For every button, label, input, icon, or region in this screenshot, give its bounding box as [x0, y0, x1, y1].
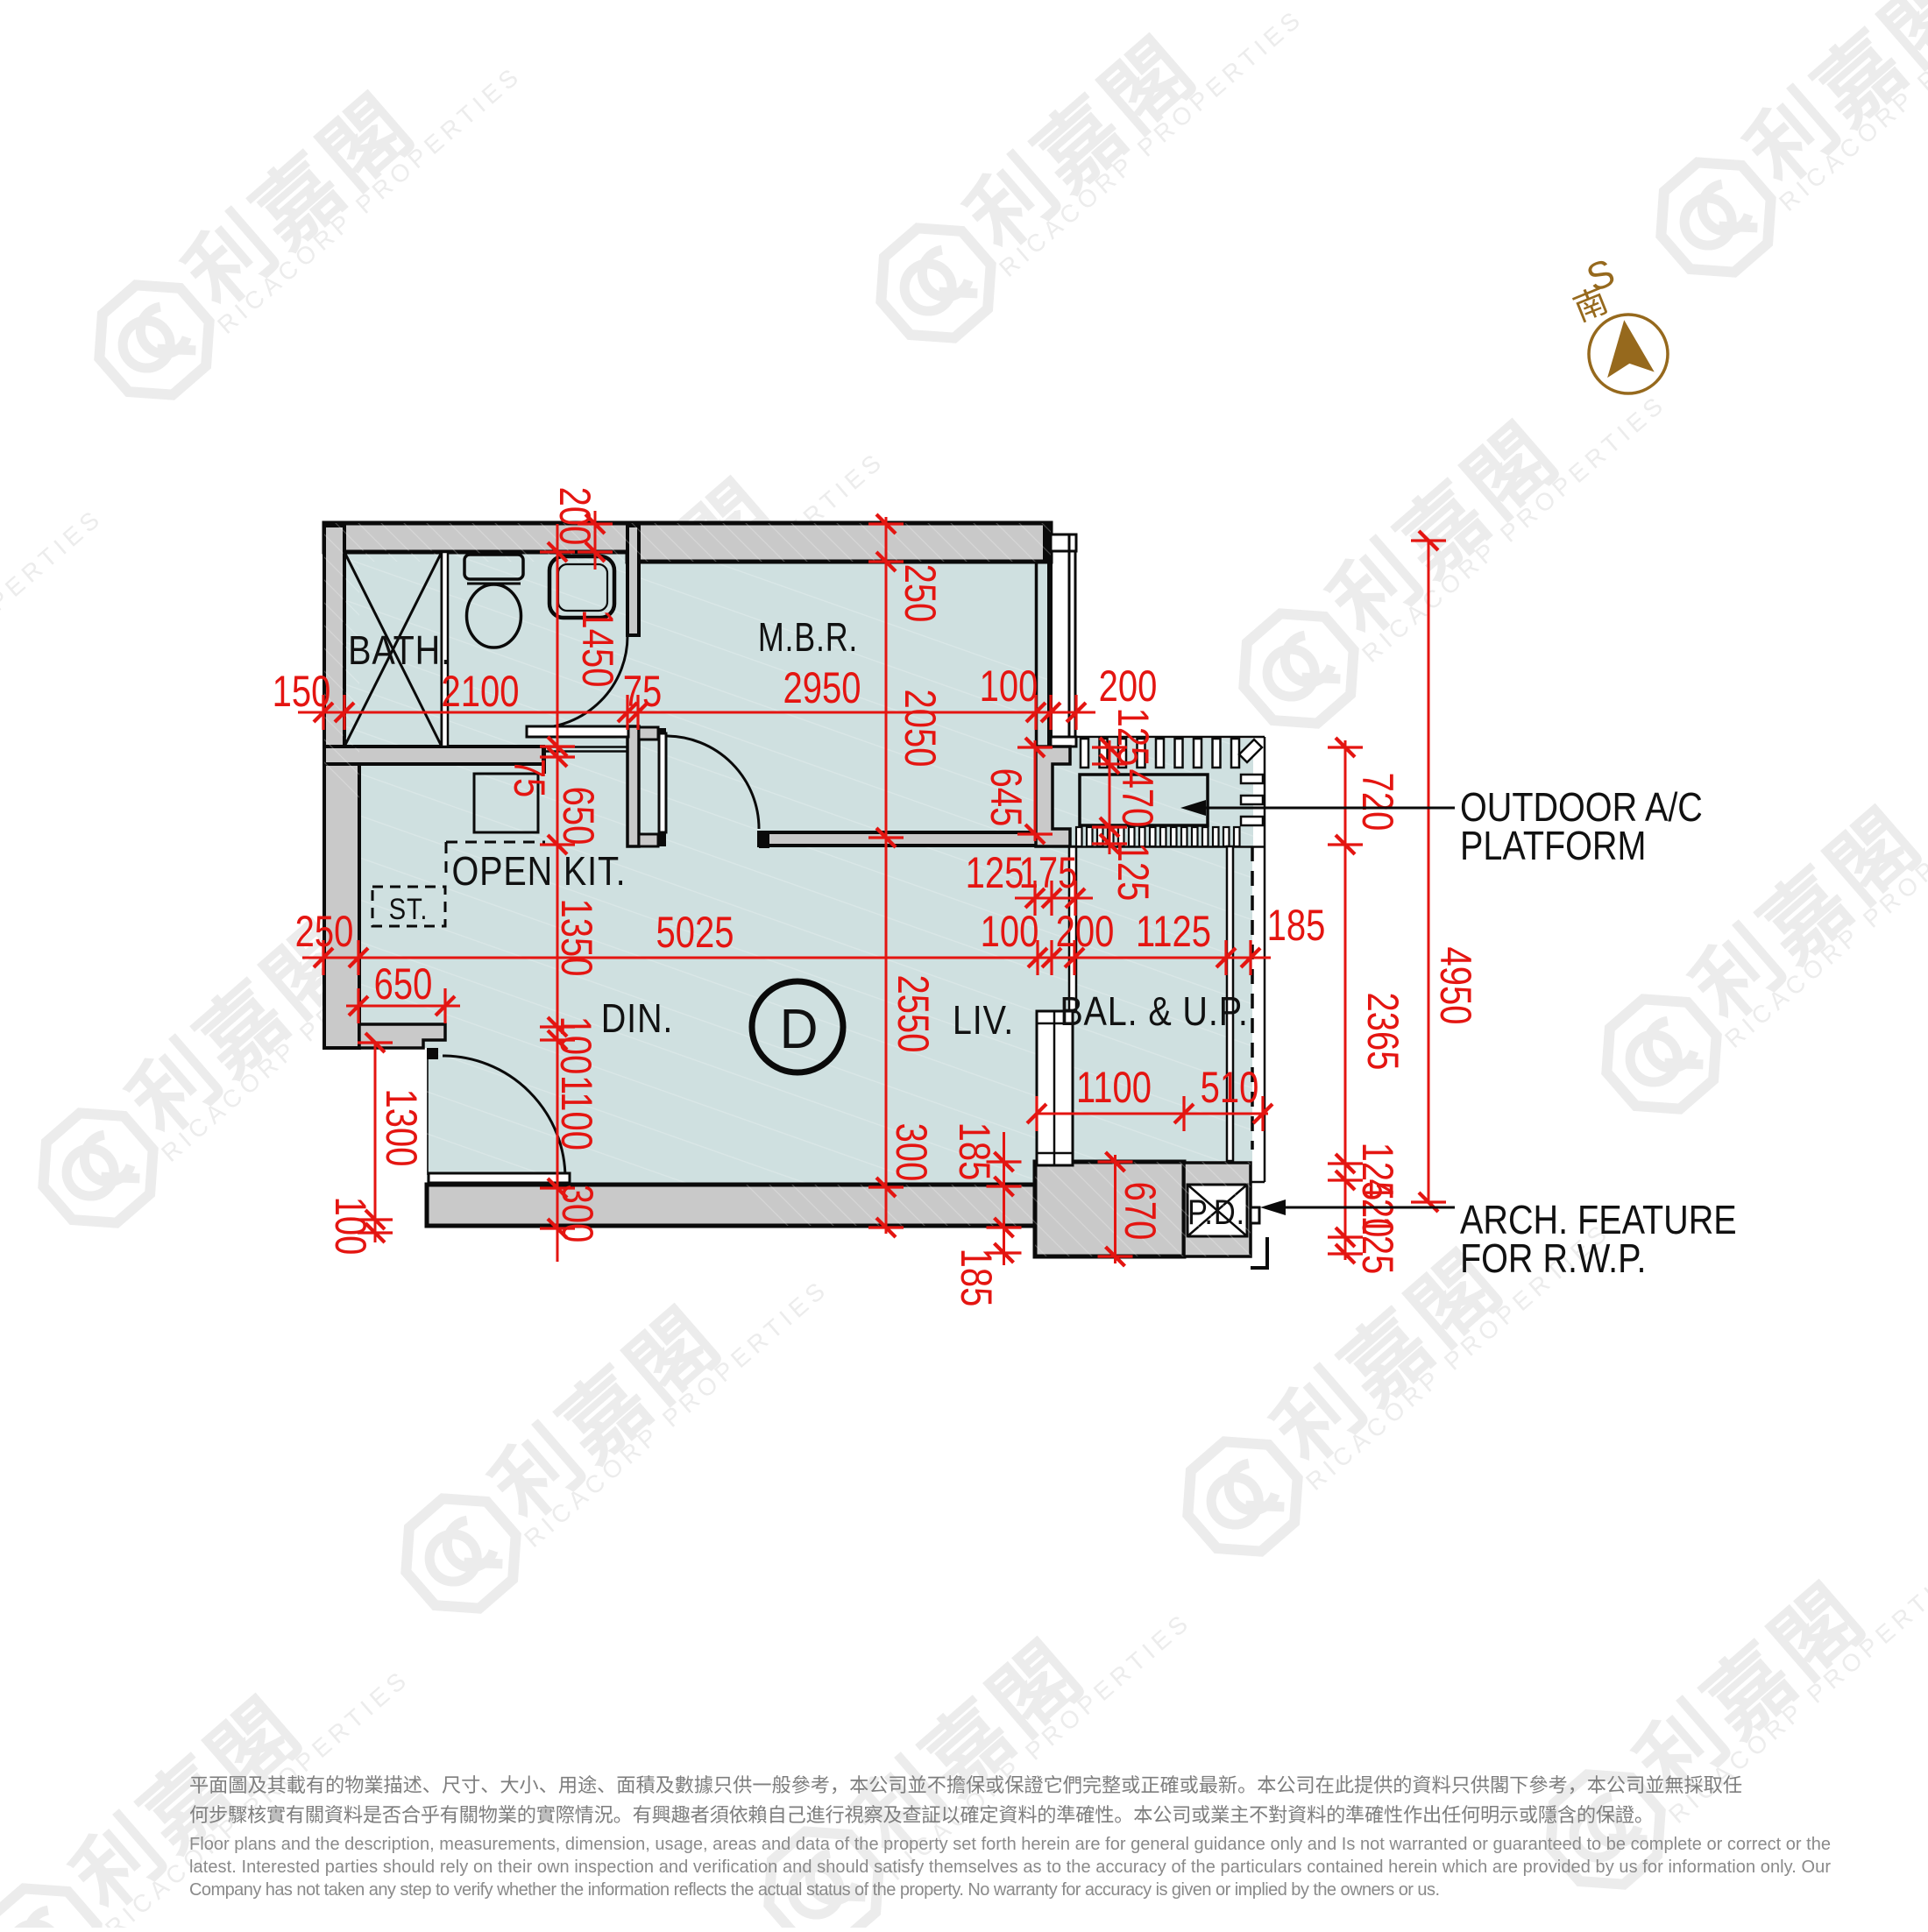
svg-text:100: 100: [981, 907, 1039, 956]
svg-text:2100: 2100: [442, 667, 520, 716]
svg-text:1125: 1125: [1136, 907, 1211, 956]
svg-text:1450: 1450: [573, 610, 622, 688]
svg-text:200: 200: [550, 487, 599, 546]
svg-text:2365: 2365: [1358, 993, 1407, 1071]
svg-text:ST.: ST.: [389, 892, 429, 926]
svg-text:650: 650: [374, 959, 433, 1008]
svg-text:1300: 1300: [377, 1089, 426, 1167]
svg-text:185: 185: [950, 1122, 999, 1181]
svg-text:470: 470: [1113, 769, 1162, 828]
svg-text:BATH.: BATH.: [348, 628, 451, 673]
svg-text:150: 150: [273, 667, 331, 716]
svg-text:LIV.: LIV.: [953, 998, 1014, 1043]
svg-text:200: 200: [1056, 907, 1115, 956]
svg-text:100: 100: [326, 1197, 375, 1256]
svg-text:100: 100: [551, 1016, 600, 1075]
svg-text:645: 645: [982, 768, 1031, 827]
svg-text:Company has not taken any step: Company has not taken any step to verify…: [189, 1880, 1440, 1900]
svg-text:300: 300: [887, 1123, 936, 1182]
svg-text:250: 250: [896, 564, 945, 623]
svg-text:125: 125: [1109, 708, 1158, 767]
svg-text:1350: 1350: [552, 899, 601, 977]
svg-text:FOR R.W.P.: FOR R.W.P.: [1460, 1236, 1646, 1281]
svg-text:125: 125: [1109, 843, 1158, 902]
svg-text:2950: 2950: [783, 663, 861, 712]
svg-text:650: 650: [554, 787, 603, 846]
svg-text:175: 175: [1019, 848, 1078, 897]
svg-text:1100: 1100: [1076, 1063, 1152, 1112]
svg-text:D: D: [780, 998, 819, 1061]
svg-text:185: 185: [1267, 901, 1326, 950]
svg-text:5025: 5025: [656, 908, 734, 957]
svg-text:125: 125: [966, 848, 1024, 897]
svg-text:DIN.: DIN.: [601, 996, 674, 1041]
svg-text:125: 125: [1353, 1216, 1402, 1275]
svg-text:75: 75: [623, 667, 662, 716]
svg-text:BAL. & U.P.: BAL. & U.P.: [1060, 989, 1248, 1034]
svg-text:4950: 4950: [1431, 947, 1480, 1025]
svg-text:300: 300: [553, 1185, 602, 1243]
svg-text:P.D.: P.D.: [1187, 1192, 1245, 1232]
svg-text:2550: 2550: [889, 975, 938, 1053]
svg-text:510: 510: [1201, 1063, 1259, 1112]
svg-text:Floor plans and the descriptio: Floor plans and the description, measure…: [189, 1835, 1831, 1854]
svg-text:M.B.R.: M.B.R.: [758, 615, 858, 660]
svg-text:720: 720: [1353, 773, 1402, 832]
svg-text:latest. Interested parties sh: latest. Interested parties should rely o…: [189, 1858, 1831, 1877]
svg-text:100: 100: [980, 662, 1038, 711]
svg-text:PLATFORM: PLATFORM: [1460, 824, 1646, 868]
svg-text:平面圖及其載有的物業描述、尺寸、大小、用途、面積及數據只供一: 平面圖及其載有的物業描述、尺寸、大小、用途、面積及數據只供一般參考，本公司並不擔…: [189, 1774, 1742, 1796]
svg-text:何步驟核實有關資料是否合乎有關物業的實際情況。有興趣者須依賴: 何步驟核實有關資料是否合乎有關物業的實際情況。有興趣者須依賴自己進行視察及查証以…: [189, 1804, 1654, 1826]
svg-text:2050: 2050: [896, 690, 945, 768]
svg-text:75: 75: [505, 759, 554, 797]
svg-text:OPEN KIT.: OPEN KIT.: [452, 849, 627, 894]
svg-text:200: 200: [1099, 662, 1158, 711]
svg-text:185: 185: [952, 1249, 1001, 1307]
svg-text:1100: 1100: [552, 1075, 601, 1150]
svg-text:670: 670: [1116, 1182, 1165, 1241]
svg-text:250: 250: [295, 907, 354, 956]
